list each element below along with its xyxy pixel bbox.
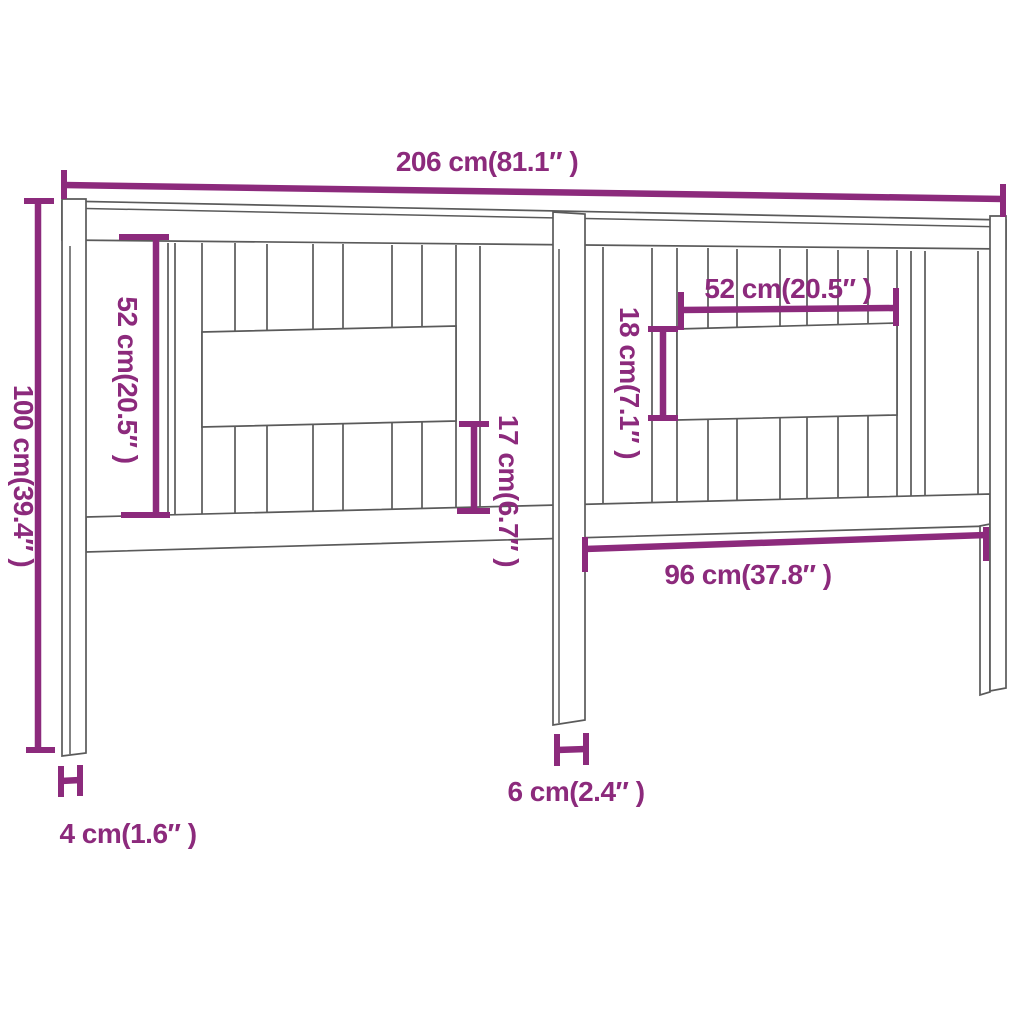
center-post — [553, 212, 585, 725]
dim-side-leg-depth-label: 4 cm(1.6″ ) — [59, 820, 196, 848]
dim-right-section-width-label: 96 cm(37.8″ ) — [664, 561, 831, 589]
left-post — [62, 199, 86, 756]
dim-right-section-width-line — [585, 535, 986, 549]
left-opening-panel — [202, 326, 456, 427]
dim-left-slat-height-label: 52 cm(20.5″ ) — [113, 296, 141, 463]
dim-center-leg-width-line — [557, 749, 586, 750]
dim-side-leg-depth — [61, 765, 80, 797]
dim-right-opening-width-label: 52 cm(20.5″ ) — [704, 275, 871, 303]
dim-total-width-line — [64, 185, 1003, 199]
dim-right-opening-height-label: 18 cm(7.1″ ) — [615, 307, 643, 459]
headboard-dimension-diagram: 206 cm(81.1″ ) 100 cm(39.4″ ) 52 cm(20.5… — [0, 0, 1024, 1024]
dim-center-leg-width — [557, 733, 586, 766]
right-post — [990, 216, 1006, 691]
dim-total-width-label: 206 cm(81.1″ ) — [396, 148, 578, 176]
dim-right-opening-width-line — [681, 308, 896, 310]
mid-rail — [86, 494, 990, 552]
top-rail — [62, 201, 1006, 249]
dim-left-lower-slat-height-label: 17 cm(6.7″ ) — [494, 415, 522, 567]
right-opening-panel — [677, 323, 897, 420]
dim-center-leg-width-label: 6 cm(2.4″ ) — [507, 778, 644, 806]
dim-total-height-label: 100 cm(39.4″ ) — [9, 385, 37, 567]
dim-left-lower-slat-height — [457, 424, 490, 511]
